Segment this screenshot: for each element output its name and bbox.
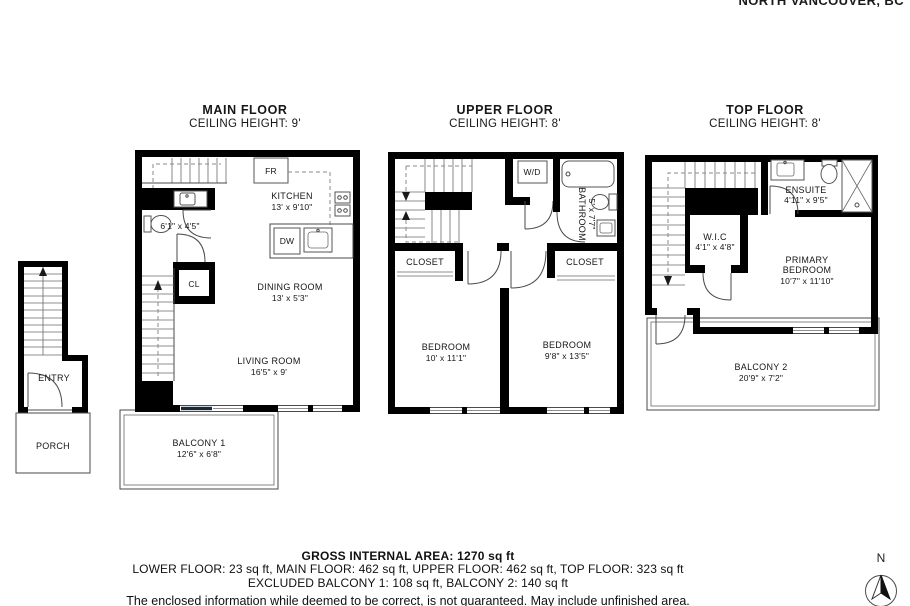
- area-summary: GROSS INTERNAL AREA: 1270 sq ft LOWER FL…: [108, 550, 708, 606]
- ensuite-label: ENSUITE: [785, 185, 826, 195]
- upper-floor-ceiling: CEILING HEIGHT: 8': [385, 118, 625, 131]
- sink-icon: [597, 220, 615, 236]
- closet-right-label: CLOSET: [566, 257, 604, 267]
- main-floor-title-block: MAIN FLOOR CEILING HEIGHT: 9': [125, 103, 365, 132]
- bedroom-right-door: [511, 251, 546, 288]
- ensuite-dims: 4'11" x 9'5": [784, 195, 828, 205]
- bedroom-left-door: [468, 251, 501, 284]
- entry-stairs: [24, 267, 62, 355]
- dishwasher-label: DW: [280, 236, 295, 246]
- balcony1-dims: 12'6" x 6'8": [177, 449, 221, 459]
- balcony1-label: BALCONY 1: [172, 438, 225, 448]
- upper-bath-label: BATHROOM: [577, 187, 587, 241]
- down-arrow: [664, 276, 672, 286]
- floor-areas-text: LOWER FLOOR: 23 sq ft, MAIN FLOOR: 462 s…: [108, 563, 708, 576]
- patio-door-glazing: [181, 407, 212, 410]
- lower-floor-plan: ENTRY PORCH: [14, 255, 106, 478]
- closet-left: [397, 272, 453, 276]
- primary-bedroom-window: [793, 327, 859, 334]
- address-text: NORTH VANCOUVER, BC: [738, 0, 904, 8]
- living-label: LIVING ROOM: [237, 356, 300, 366]
- hall-walls: [395, 243, 617, 407]
- primary-bedroom-label-1: PRIMARY: [786, 255, 829, 265]
- main-floor-ceiling: CEILING HEIGHT: 9': [125, 118, 365, 131]
- down-arrow: [402, 192, 410, 201]
- bedroom-doors: [468, 251, 546, 288]
- up-arrow: [402, 211, 410, 220]
- top-floor-plan: BALCONY 2 20'9" x 7'2": [643, 148, 888, 423]
- primary-bedroom-label-2: BEDROOM: [783, 265, 832, 275]
- closet-right: [557, 276, 615, 280]
- living-dims: 16'5" x 9': [251, 367, 287, 377]
- wic-dims: 4'1" x 4'8": [695, 242, 734, 252]
- porch-label: PORCH: [36, 441, 70, 451]
- wic-door: [703, 273, 731, 300]
- vanity-sink-icon: [771, 160, 804, 180]
- main-closet: [173, 234, 215, 304]
- upper-floor-title: UPPER FLOOR: [385, 103, 625, 117]
- main-stairs-long-run: [142, 268, 174, 381]
- main-bath-dims: 6'1" x 4'5": [160, 221, 199, 231]
- main-closet-label: CL: [188, 279, 199, 289]
- bedroom-right-dims: 9'8" x 13'5": [545, 351, 589, 361]
- disclaimer-text: The enclosed information while deemed to…: [108, 594, 708, 606]
- toilet-icon: [144, 216, 151, 232]
- upper-floor-plan: W/D BATHROOM 5' x 7'7": [385, 148, 630, 423]
- kitchen-dims: 13' x 9'10": [271, 202, 312, 212]
- compass-north-label: N: [869, 551, 893, 565]
- compass-icon: [860, 568, 904, 606]
- balcony2-label: BALCONY 2: [734, 362, 787, 372]
- kitchen-label: KITCHEN: [271, 191, 313, 201]
- upper-bath-dims: 5' x 7'7": [587, 198, 597, 229]
- up-arrow: [39, 267, 47, 276]
- balcony-door: [656, 315, 685, 344]
- shower-icon: [842, 160, 872, 212]
- upper-floor-title-block: UPPER FLOOR CEILING HEIGHT: 8': [385, 103, 625, 132]
- washer-dryer-label: W/D: [523, 167, 540, 177]
- laundry-door: [525, 201, 553, 229]
- primary-bedroom-dims: 10'7" x 11'10": [780, 276, 834, 286]
- fridge-label: FR: [265, 166, 277, 176]
- closet-left-label: CLOSET: [406, 257, 444, 267]
- bedroom-right-label: BEDROOM: [543, 340, 592, 350]
- upper-stairs: [395, 159, 472, 244]
- bedroom-left-label: BEDROOM: [422, 342, 471, 352]
- toilet-icon: [821, 160, 837, 184]
- floor-plan-document: NORTH VANCOUVER, BC MAIN FLOOR CEILING H…: [0, 0, 910, 606]
- top-floor-title: TOP FLOOR: [645, 103, 885, 117]
- dining-label: DINING ROOM: [257, 282, 322, 292]
- top-floor-ceiling: CEILING HEIGHT: 8': [645, 118, 885, 131]
- dining-dims: 13' x 5'3": [272, 293, 308, 303]
- entry-label: ENTRY: [38, 373, 70, 383]
- gross-area-text: GROSS INTERNAL AREA: 1270 sq ft: [108, 550, 708, 563]
- stove-icon: [335, 192, 350, 216]
- bedroom-left-dims: 10' x 11'1": [426, 353, 466, 363]
- balcony2-dims: 20'9" x 7'2": [739, 373, 783, 383]
- main-floor-plan: BALCONY 1 12'6" x 6'8": [116, 148, 364, 496]
- excluded-areas-text: EXCLUDED BALCONY 1: 108 sq ft, BALCONY 2…: [108, 577, 708, 590]
- closet-door: [177, 234, 205, 262]
- main-floor-title: MAIN FLOOR: [125, 103, 365, 117]
- wic-label: W.I.C: [703, 232, 727, 242]
- top-floor-title-block: TOP FLOOR CEILING HEIGHT: 8': [645, 103, 885, 132]
